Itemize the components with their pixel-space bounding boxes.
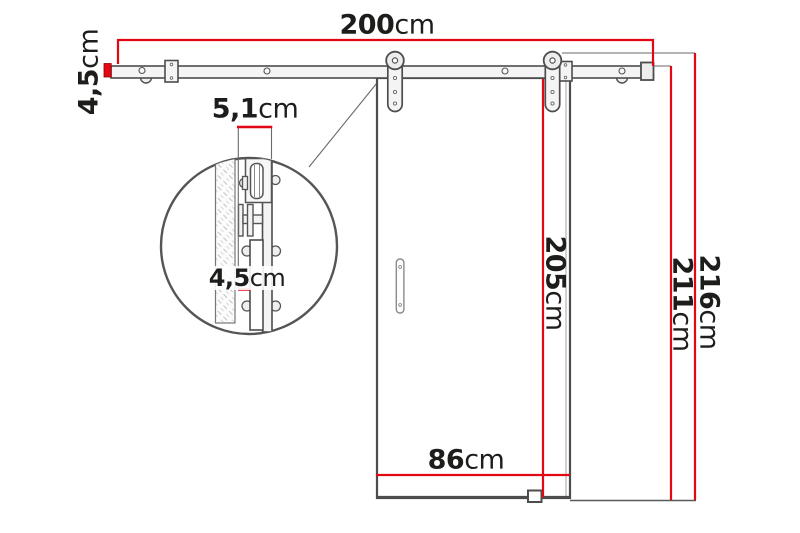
sliding-door-dimension-diagram: 200cm 4,5cm 5,1cm 4,5cm 205cm 211cm 216c… <box>0 0 800 533</box>
wall-hatch-section <box>216 150 236 323</box>
roller-section <box>243 159 272 203</box>
label-detail-depth-unit: cm <box>258 94 298 125</box>
label-detail-wall-gap-unit: cm <box>250 264 286 292</box>
label-track-length-unit: cm <box>394 10 434 41</box>
label-detail-wall-gap-value: 4,5 <box>209 264 250 292</box>
label-track-length: 200cm <box>339 12 434 39</box>
label-door-height-unit: cm <box>540 290 571 330</box>
rail-end-cap-red <box>104 64 111 78</box>
label-detail-depth: 5,1cm <box>212 96 299 123</box>
label-detail-wall-gap: 4,5cm <box>207 266 288 290</box>
label-door-width: 86cm <box>428 447 505 474</box>
floor-guide <box>528 491 542 503</box>
door-handle <box>396 259 404 313</box>
callout-connector-line <box>309 78 381 167</box>
label-door-width-unit: cm <box>464 445 504 476</box>
label-total-height-unit: cm <box>694 309 725 349</box>
label-track-profile-height-unit: cm <box>74 29 105 69</box>
label-track-length-value: 200 <box>339 10 394 41</box>
label-track-profile-height: 4,5cm <box>76 29 103 116</box>
label-door-height-value: 205 <box>540 235 571 290</box>
label-track-profile-height-value: 4,5 <box>74 69 105 115</box>
hanger-left <box>386 52 404 112</box>
hanger-right <box>544 52 562 112</box>
label-door-width-value: 86 <box>428 445 465 476</box>
detail-circle <box>161 127 337 334</box>
rail-end-bracket <box>641 63 654 81</box>
label-total-height-value: 216 <box>694 254 725 309</box>
label-detail-depth-value: 5,1 <box>212 94 258 125</box>
label-total-height: 216cm <box>696 254 723 349</box>
label-track-mount-height: 211cm <box>669 256 696 351</box>
label-door-height: 205cm <box>542 235 569 330</box>
